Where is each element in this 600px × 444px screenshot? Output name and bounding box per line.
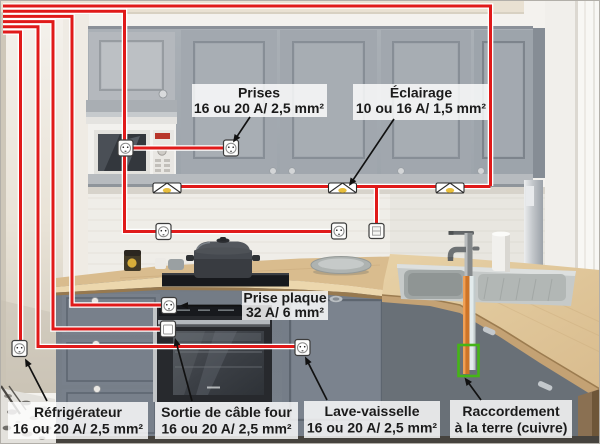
svg-text:Éclairage: Éclairage xyxy=(390,85,452,101)
svg-text:16 ou 20 A/ 2,5 mm²: 16 ou 20 A/ 2,5 mm² xyxy=(194,100,325,116)
svg-text:16 ou 20 A/ 2,5 mm²: 16 ou 20 A/ 2,5 mm² xyxy=(161,421,292,437)
svg-text:Raccordement: Raccordement xyxy=(462,403,560,419)
svg-text:16 ou 20 A/ 2,5 mm²: 16 ou 20 A/ 2,5 mm² xyxy=(307,420,438,436)
svg-text:Sortie de câble four: Sortie de câble four xyxy=(161,404,292,420)
svg-text:Réfrigérateur: Réfrigérateur xyxy=(34,404,122,420)
svg-text:32 A/ 6 mm²: 32 A/ 6 mm² xyxy=(246,304,324,320)
svg-text:10 ou 16 A/ 1,5 mm²: 10 ou 16 A/ 1,5 mm² xyxy=(356,100,487,116)
svg-text:Lave-vaisselle: Lave-vaisselle xyxy=(325,403,420,419)
svg-text:Prises: Prises xyxy=(238,85,280,101)
svg-text:à la terre (cuivre): à la terre (cuivre) xyxy=(455,420,568,436)
svg-text:16 ou 20 A/ 2,5 mm²: 16 ou 20 A/ 2,5 mm² xyxy=(13,421,144,437)
